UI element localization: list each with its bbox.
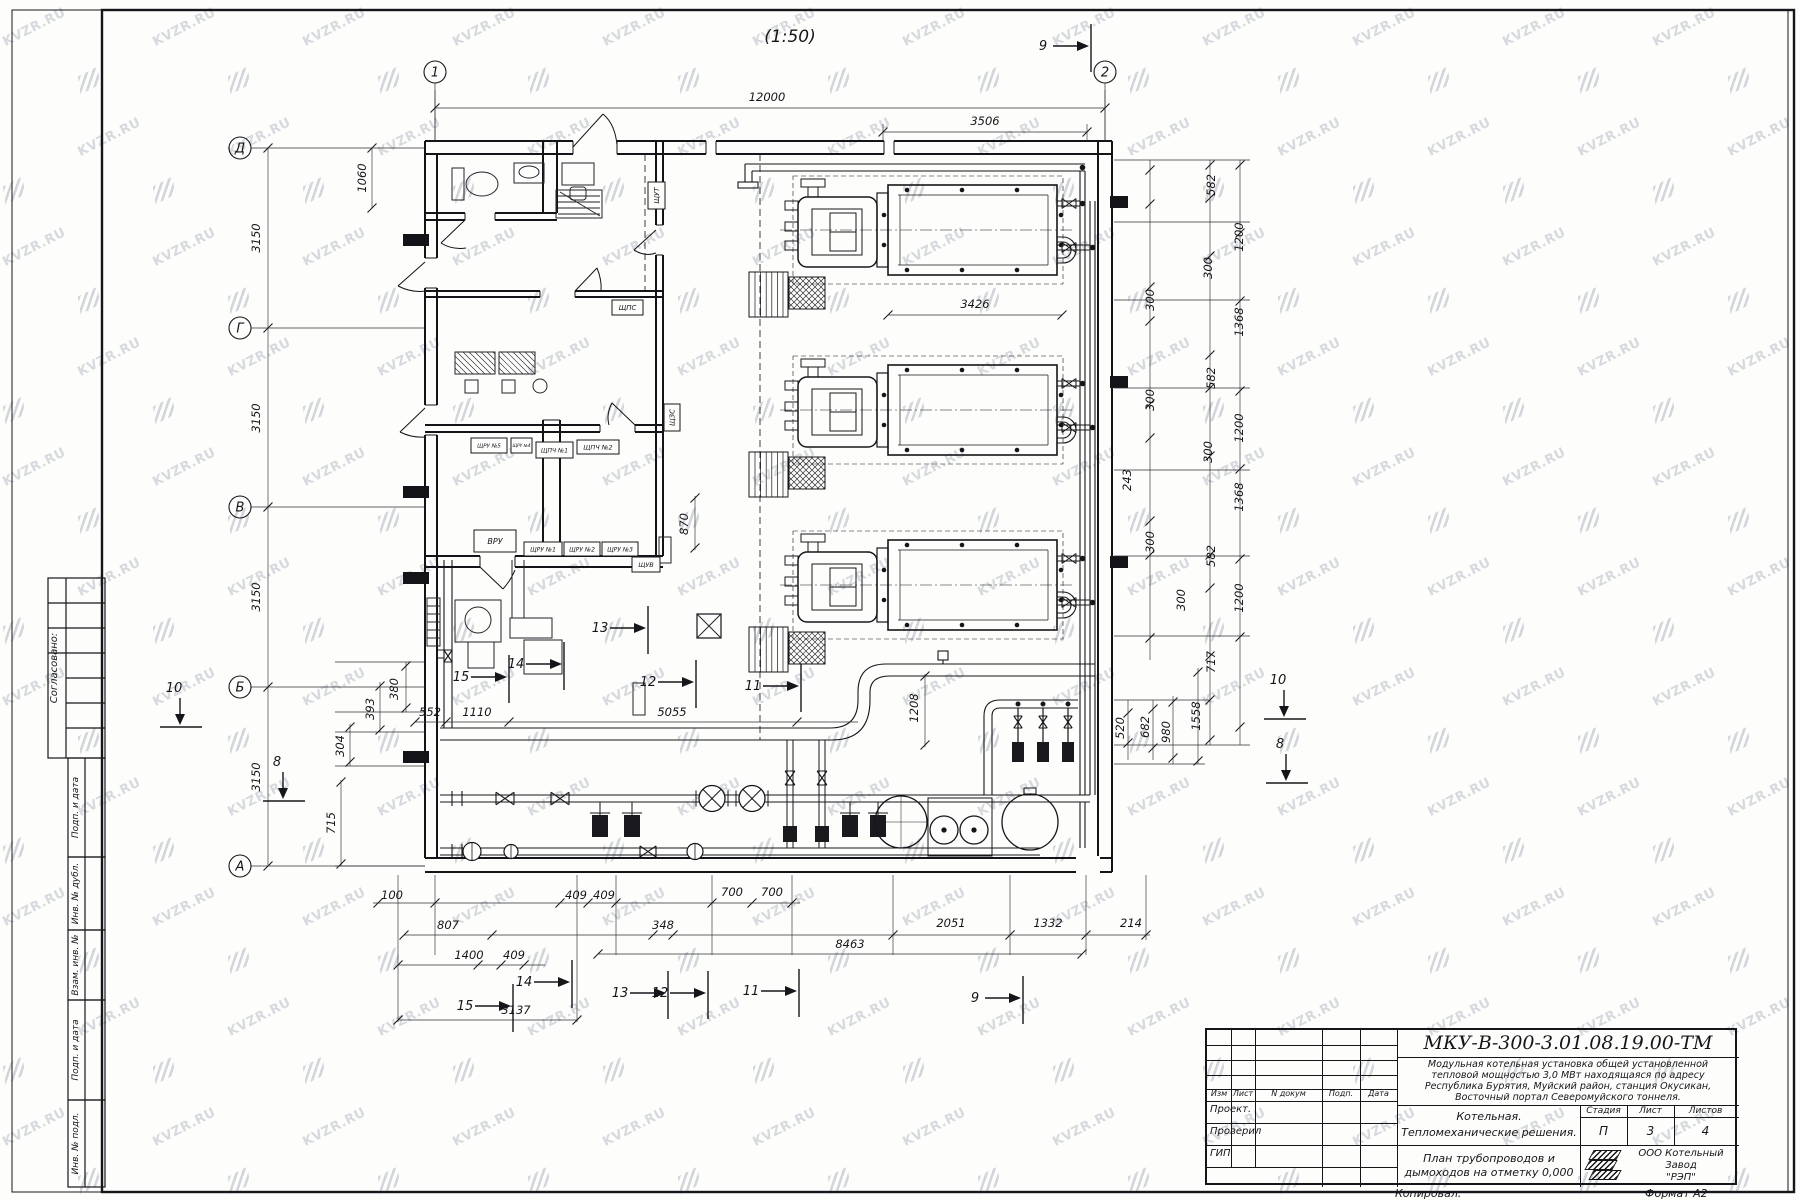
svg-text:А: А <box>235 860 245 875</box>
svg-text:11: 11 <box>745 679 762 694</box>
svg-text:11: 11 <box>743 984 760 999</box>
svg-text:10: 10 <box>166 681 183 696</box>
svg-text:10: 10 <box>1270 673 1287 688</box>
equipment-label-ЩЗС: ЩЗС <box>664 404 680 431</box>
svg-text:ЩУТ: ЩУТ <box>653 187 661 204</box>
copied-label: Копировал: <box>1395 1187 1462 1200</box>
title-block: МКУ-В-300-3.01.08.19.00-ТМ Модульная кот… <box>1205 1028 1737 1185</box>
stamp-soglasovano: Согласовано: <box>49 633 60 704</box>
dimension-label: 682 <box>1138 716 1152 738</box>
dimension-label: 5055 <box>657 705 686 719</box>
section-marker-11: 11 <box>743 969 799 1017</box>
dimension-label: 380 <box>387 678 401 700</box>
sheet-title2: дымоходов на отметку 0,000 <box>1399 1166 1579 1179</box>
dimension-label: 700 <box>761 885 783 899</box>
dimension-label: 552 <box>419 705 441 719</box>
dimension-label: 12000 <box>749 90 786 104</box>
dimension-label: 300 <box>1201 441 1215 463</box>
sheet-value: 3 <box>1627 1124 1674 1138</box>
axis-bubble-Д: Д <box>229 137 425 159</box>
dimension-label: 100 <box>381 888 403 902</box>
svg-text:ЩУВ: ЩУВ <box>638 561 654 569</box>
stamp-box-label: Инв. № дубл. <box>71 863 81 925</box>
dimension-label: 717 <box>1204 650 1218 673</box>
svg-text:9: 9 <box>971 991 979 1006</box>
axis-bubble-В: В <box>229 496 425 518</box>
section-marker-10: 10 <box>1264 673 1306 719</box>
company-line: ООО Котельный <box>1625 1148 1737 1159</box>
dimension-label: 300 <box>1143 289 1157 311</box>
axis-bubble-1: 1 <box>424 61 446 141</box>
dimension-label: 582 <box>1204 174 1218 196</box>
dimension-label: 3150 <box>249 582 263 611</box>
dimension-label: 520 <box>1113 717 1127 739</box>
dimension-label: 1208 <box>907 693 921 722</box>
dimension-label: 409 <box>565 888 587 902</box>
section-marker-12: 12 <box>640 660 696 708</box>
left-stamp-column: Согласовано:Подп. и датаИнв. № дубл.Взам… <box>48 578 105 1187</box>
section-marker-11: 11 <box>745 664 801 712</box>
col-podp: Подп. <box>1322 1089 1360 1098</box>
company-logo <box>1587 1150 1621 1182</box>
row-proveril: Проверил <box>1210 1126 1261 1137</box>
svg-text:9: 9 <box>1039 39 1047 54</box>
dimension-label: 1368 <box>1232 307 1246 336</box>
boiler-unit-2 <box>749 356 1095 497</box>
section-marker-8: 8 <box>263 755 305 801</box>
equipment-label-ЩРУ №2: ЩРУ №2 <box>564 542 600 556</box>
equipment-label-ЩПС: ЩПС <box>612 300 643 315</box>
svg-text:Б: Б <box>236 681 245 696</box>
sheet-title: План трубопроводов и <box>1399 1152 1579 1165</box>
dimension-label: 1110 <box>462 705 491 719</box>
sheets-value: 4 <box>1674 1124 1737 1138</box>
svg-text:ЩРУ №4: ЩРУ №4 <box>512 443 530 448</box>
pipework <box>437 164 1095 859</box>
svg-text:ЩРУ №3: ЩРУ №3 <box>607 546 633 553</box>
equipment-label-ЩРУ №1: ЩРУ №1 <box>524 542 562 556</box>
doc-number: МКУ-В-300-3.01.08.19.00-ТМ <box>1399 1030 1737 1057</box>
svg-text:13: 13 <box>612 986 629 1001</box>
dimension-label: 980 <box>1159 721 1173 743</box>
svg-text:13: 13 <box>592 621 609 636</box>
svg-text:ЩРУ №5: ЩРУ №5 <box>477 444 501 450</box>
row-proekt: Проект. <box>1210 1104 1251 1115</box>
col-izm: Изм <box>1207 1089 1231 1098</box>
dimension-label: 715 <box>324 812 338 834</box>
dimension-label: 870 <box>677 513 691 535</box>
dimension-label: 300 <box>1174 589 1188 611</box>
dimension-label: 1200 <box>1232 413 1246 442</box>
svg-text:Д: Д <box>234 142 245 157</box>
section-marker-15: 15 <box>457 984 513 1032</box>
dimension-label: 1400 <box>454 948 483 962</box>
section-marker-9: 9 <box>1039 24 1091 72</box>
section-marker-13: 13 <box>592 606 648 654</box>
dimension-label: 807 <box>437 918 460 932</box>
format-label: Формат А2 <box>1645 1187 1708 1200</box>
annotations: (1:50)ДГВБА12120003506342610603150315031… <box>160 24 1308 1032</box>
row-gip: ГИП <box>1210 1148 1231 1159</box>
svg-text:14: 14 <box>516 975 533 990</box>
scale-note: (1:50) <box>764 27 815 47</box>
svg-text:2: 2 <box>1101 66 1109 81</box>
dimension-label: 700 <box>721 885 743 899</box>
svg-text:12: 12 <box>640 675 657 690</box>
stamp-box-label: Взам. инв. № <box>71 934 81 995</box>
dimension-label: 8463 <box>835 937 864 951</box>
dimension-label: 409 <box>593 888 615 902</box>
equipment-label-ВРУ: ВРУ <box>474 530 516 552</box>
stamp-box-label: Подп. и дата <box>71 1019 81 1080</box>
dimension-label: 1332 <box>1033 916 1062 930</box>
dimension-lines <box>264 90 1251 1025</box>
plan-drawing: Согласовано:Подп. и датаИнв. № дубл.Взам… <box>0 0 1800 1200</box>
svg-text:В: В <box>236 501 245 516</box>
section-marker-9: 9 <box>971 976 1023 1024</box>
stamp-box-label: Инв. № подл. <box>71 1112 81 1174</box>
dimension-label: 348 <box>652 918 674 932</box>
dimension-label: 409 <box>503 948 525 962</box>
section-marker-8: 8 <box>1266 737 1308 783</box>
dimension-label: 300 <box>1201 257 1215 279</box>
boiler-unit-3 <box>749 531 1095 672</box>
svg-text:ЩРУ №2: ЩРУ №2 <box>569 546 595 553</box>
svg-text:15: 15 <box>453 670 470 685</box>
sheets-label: Листов <box>1674 1106 1737 1116</box>
company-line: Завод <box>1625 1160 1737 1171</box>
col-data: Дата <box>1360 1089 1397 1098</box>
tanks <box>875 788 1058 856</box>
dimension-label: 300 <box>1143 531 1157 553</box>
dimension-label: 1200 <box>1232 583 1246 612</box>
company-line: "РЭП" <box>1625 1172 1737 1183</box>
sheet-frame <box>12 10 1794 1192</box>
svg-text:15: 15 <box>457 999 474 1014</box>
drawing-sheet: KVZR.RUKVZR.RUKVZR.RUKVZR.RUKVZR.RUKVZR.… <box>0 0 1800 1200</box>
dimension-label: 3150 <box>249 223 263 252</box>
dimension-label: 582 <box>1204 545 1218 567</box>
stamp-box-label: Подп. и дата <box>71 777 81 838</box>
section-marker-10: 10 <box>160 681 202 727</box>
object-name: Котельная. <box>1399 1110 1579 1123</box>
dimension-label: 243 <box>1120 469 1134 491</box>
dimension-label: 300 <box>1143 389 1157 411</box>
building-walls <box>425 141 1112 872</box>
dimension-label: 3426 <box>960 297 989 311</box>
dimension-label: 1060 <box>355 163 369 192</box>
dimension-label: 2051 <box>936 916 965 930</box>
dimension-label: 3506 <box>970 114 999 128</box>
stage-label: Стадия <box>1580 1106 1627 1116</box>
svg-text:ЩРУ №1: ЩРУ №1 <box>530 546 556 553</box>
wall-openings <box>403 138 1128 874</box>
dimension-label: 393 <box>363 698 377 720</box>
wall-pipe-connectors <box>403 196 1128 763</box>
equipment-label-ЩРУ №4: ЩРУ №4 <box>511 438 532 453</box>
dimension-label: 1368 <box>1232 482 1246 511</box>
svg-text:ЩПЧ №1: ЩПЧ №1 <box>541 447 568 454</box>
object-name2: Тепломеханические решения. <box>1399 1126 1579 1139</box>
svg-text:Г: Г <box>236 322 245 337</box>
axis-bubble-А: А <box>229 855 425 877</box>
section-marker-14: 14 <box>508 642 564 690</box>
dimension-label: 214 <box>1120 916 1142 930</box>
svg-text:8: 8 <box>1276 737 1284 752</box>
svg-text:ЩПЧ №2: ЩПЧ №2 <box>583 443 612 451</box>
equipment-label-ЩПЧ №2: ЩПЧ №2 <box>577 440 619 454</box>
hatch-fills <box>455 277 825 664</box>
col-list: Лист <box>1231 1089 1255 1098</box>
col-ndoc: N докум <box>1255 1089 1322 1098</box>
svg-text:14: 14 <box>508 657 525 672</box>
equipment-label-ЩРУ №3: ЩРУ №3 <box>602 542 638 556</box>
svg-text:8: 8 <box>273 755 281 770</box>
dimension-label: 1200 <box>1232 222 1246 251</box>
dimension-label: 304 <box>333 735 347 757</box>
equipment-label-ЩПЧ №1: ЩПЧ №1 <box>536 442 573 458</box>
svg-text:ВРУ: ВРУ <box>487 537 503 546</box>
stage-value: П <box>1580 1124 1627 1138</box>
section-marker-15: 15 <box>453 655 509 703</box>
axis-bubble-2: 2 <box>1094 61 1116 141</box>
doc-description-line: Восточный портал Северомуйского тоннеля. <box>1399 1092 1737 1104</box>
dimension-label: 1558 <box>1189 701 1203 730</box>
section-marker-14: 14 <box>516 960 572 1008</box>
svg-text:1: 1 <box>431 66 439 81</box>
boiler-units <box>749 165 1095 672</box>
equipment-label-ЩРУ №5: ЩРУ №5 <box>471 438 507 453</box>
svg-text:ЩЗС: ЩЗС <box>669 409 677 426</box>
equipment-label-ЩУВ: ЩУВ <box>632 557 660 572</box>
dimension-label: 3150 <box>249 403 263 432</box>
equipment-label-ЩУТ: ЩУТ <box>648 182 665 209</box>
section-marker-13: 13 <box>612 971 668 1019</box>
sheet-label: Лист <box>1627 1106 1674 1116</box>
boiler-unit-1 <box>749 176 1095 317</box>
axis-bubble-Г: Г <box>229 317 425 339</box>
dimension-label: 3150 <box>249 762 263 791</box>
dimension-label: 582 <box>1204 367 1218 389</box>
svg-text:ЩПС: ЩПС <box>619 304 637 312</box>
